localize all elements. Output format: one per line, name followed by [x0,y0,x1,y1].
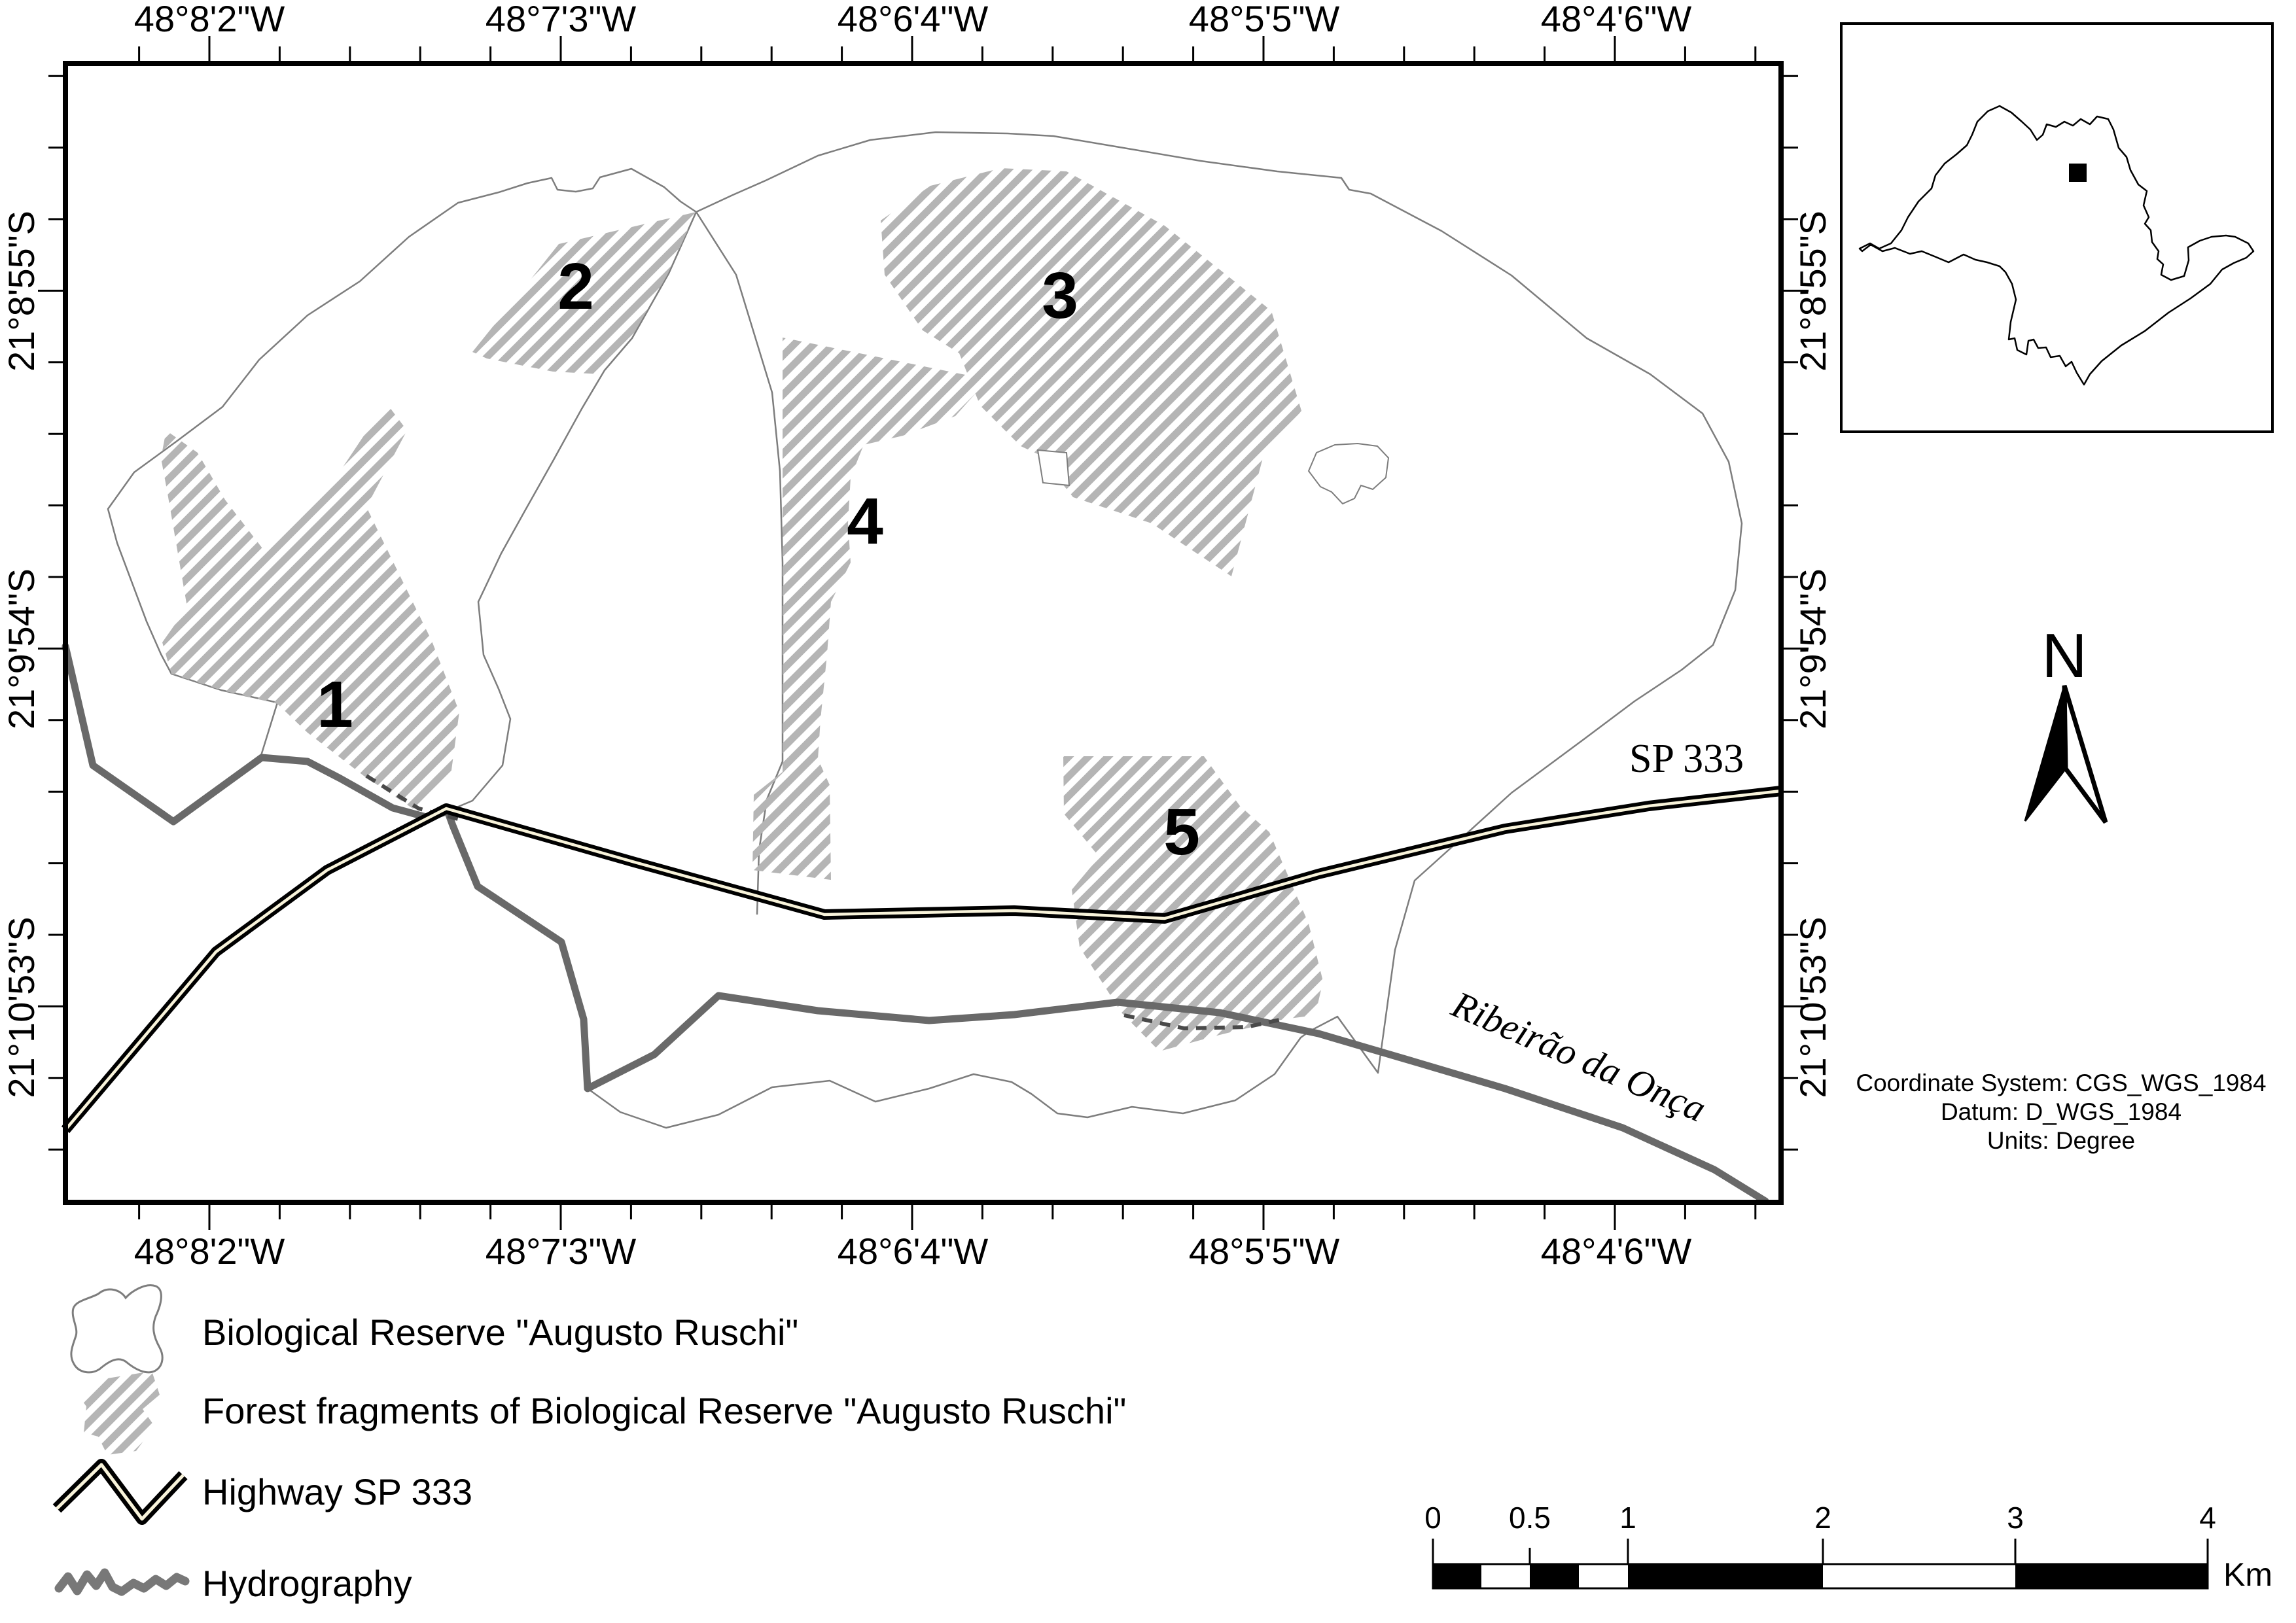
tick-label: 21°10'53"S [1,916,42,1098]
legend: Biological Reserve "Augusto Ruschi" Fore… [57,1285,1126,1604]
scale-tick-label: 0.5 [1509,1501,1551,1535]
legend-reserve-outline-icon [71,1285,162,1372]
tick-label: 21°8'55"S [1,211,42,372]
tick-label: 48°8'2"W [134,0,285,39]
tick-label: 48°5'5"W [1189,1230,1340,1272]
legend-item-label: Biological Reserve "Augusto Ruschi" [202,1312,798,1353]
tick-label: 21°9'54"S [1792,568,1833,729]
tick-label: 21°9'54"S [1,568,42,729]
legend-highway-icon [57,1465,183,1519]
map-canvas: 1 2 3 4 5 SP 333 Ribeirão da Onça 48°8'2… [0,0,2296,1623]
scale-tick-label: 2 [1814,1501,1831,1535]
scale-tick-label: 1 [1619,1501,1636,1535]
main-map: 1 2 3 4 5 SP 333 Ribeirão da Onça [65,132,1781,1201]
north-arrow-right-half [2064,686,2106,822]
scale-bar-ticks [1433,1539,2208,1564]
north-label: N [2041,621,2087,691]
credits-line1: Coordinate System: CGS_WGS_1984 [1856,1070,2266,1096]
fragment-label-1: 1 [317,668,353,741]
legend-hydrography-icon [59,1573,185,1592]
fragment-label-5: 5 [1163,795,1200,869]
credits-line3: Units: Degree [1987,1127,2135,1154]
tick-label: 48°7'3"W [486,1230,637,1272]
tick-label: 48°6'4"W [838,1230,989,1272]
fragment-label-4: 4 [847,485,883,558]
tick-label: 48°5'5"W [1189,0,1340,39]
road-label: SP 333 [1629,737,1744,781]
credits-block: Coordinate System: CGS_WGS_1984 Datum: D… [1856,1070,2266,1154]
legend-forest-fragment-icon [80,1371,160,1455]
axis-labels-bottom: 48°8'2"W 48°7'3"W 48°6'4"W 48°5'5"W 48°4… [134,1230,1692,1272]
legend-item-label: Hydrography [202,1563,412,1604]
scale-tick-label: 0 [1424,1501,1441,1535]
scale-tick-label: 4 [2199,1501,2216,1535]
credits-line2: Datum: D_WGS_1984 [1941,1098,2181,1125]
tick-label: 48°6'4"W [838,0,989,39]
river-label: Ribeirão da Onça [1445,983,1712,1130]
tick-label: 48°4'6"W [1541,1230,1692,1272]
tick-label: 48°4'6"W [1541,0,1692,39]
scale-bar: 0 0.5 1 2 3 4 Km [1424,1501,2272,1593]
fragment-label-2: 2 [557,250,594,323]
north-arrow-left-half [2025,686,2066,821]
tick-label: 48°8'2"W [134,1230,285,1272]
scale-bar-segments [1433,1564,2208,1588]
north-arrow: N [2025,621,2106,822]
axis-labels-left: 21°8'55"S 21°9'54"S 21°10'53"S [1,211,42,1098]
inset-map [1841,24,2272,432]
study-area-marker [2069,164,2087,182]
axis-labels-top: 48°8'2"W 48°7'3"W 48°6'4"W 48°5'5"W 48°4… [134,0,1692,39]
map-figure: 1 2 3 4 5 SP 333 Ribeirão da Onça 48°8'2… [0,0,2296,1623]
tick-label: 21°10'53"S [1792,916,1833,1098]
legend-item-label: Forest fragments of Biological Reserve "… [202,1390,1126,1431]
tick-label: 48°7'3"W [486,0,637,39]
legend-item-label: Highway SP 333 [202,1471,472,1512]
fragment-label-3: 3 [1042,259,1078,332]
boundary-hole-small [1038,450,1069,485]
axis-labels-right: 21°8'55"S 21°9'54"S 21°10'53"S [1792,211,1833,1098]
scale-tick-label: 3 [2007,1501,2024,1535]
scale-unit-label: Km [2223,1556,2272,1593]
tick-label: 21°8'55"S [1792,211,1833,372]
